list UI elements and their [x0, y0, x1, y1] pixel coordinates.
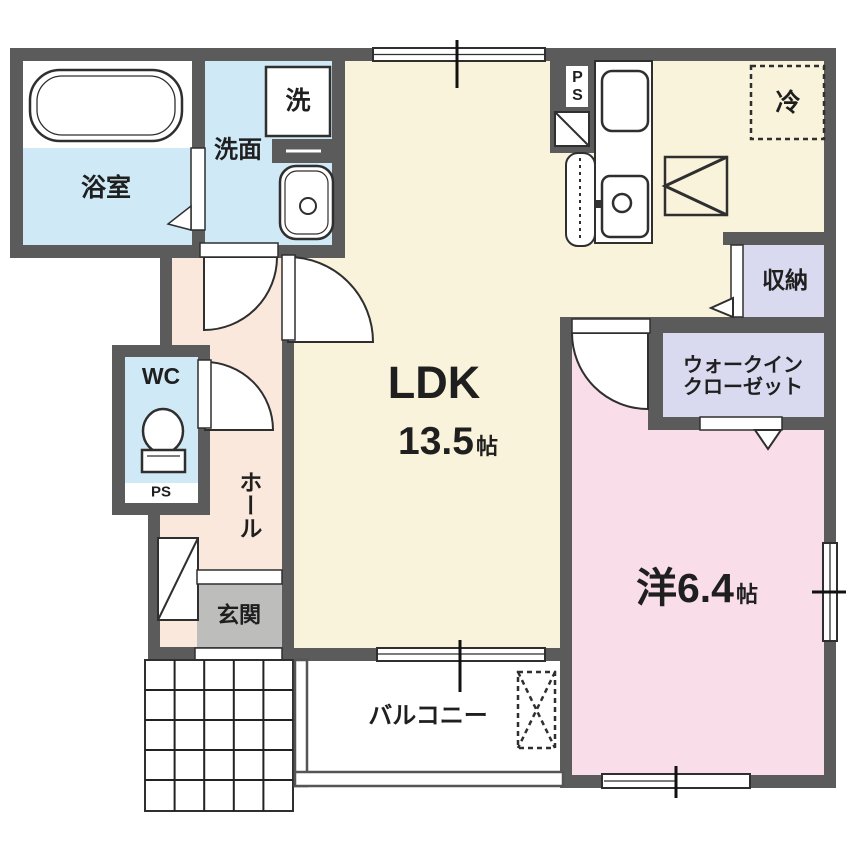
- wall-western-left: [560, 317, 572, 788]
- ldk-size-unit: 帖: [476, 435, 498, 460]
- wall-wic-left: [648, 317, 663, 430]
- washroom-label: 洗面: [214, 138, 262, 165]
- kitchen-stove: [602, 71, 648, 131]
- floor-plan: 浴室 洗 洗面 PS 冷 収納 ウォークイン クローゼット LDK 13.5帖 …: [0, 0, 846, 846]
- wc-ps-label: PS: [151, 485, 171, 502]
- ldk-size: 13.5帖: [398, 420, 498, 464]
- refrigerator-label: 冷: [775, 89, 800, 117]
- entrance-step: [197, 570, 282, 584]
- shoe-cabinet: [158, 538, 198, 620]
- porch-tiles: [145, 660, 293, 811]
- kitchen-counter-return: [566, 153, 595, 246]
- western-room-label: 洋6.4帖: [636, 566, 758, 612]
- hall-label: ホール: [235, 471, 261, 540]
- balcony-label: バルコニー: [368, 704, 488, 731]
- ldk-size-value: 13.5: [398, 420, 474, 464]
- wall-left-upper: [10, 48, 23, 258]
- kitchen-diagonal-square: [555, 112, 589, 146]
- washing-machine-label: 洗: [285, 87, 310, 115]
- ldk-label: LDK: [388, 358, 480, 408]
- entrance-label: 玄関: [217, 604, 261, 629]
- bath-label: 浴室: [81, 174, 131, 202]
- walk-in-closet-label: ウォークイン クローゼット: [683, 355, 803, 400]
- kitchen-ps-label: PS: [568, 69, 586, 105]
- balcony-equipment-box: [518, 672, 555, 748]
- wc-label: WC: [142, 364, 180, 390]
- bathtub: [30, 70, 182, 141]
- wall-storage-top: [723, 232, 836, 245]
- washroom-wall-stub: [272, 139, 333, 163]
- wall-washroom-ldk: [332, 48, 345, 258]
- walk-in-closet-label-line1: ウォークイン: [683, 355, 803, 377]
- wall-hall-left-upper: [160, 245, 172, 350]
- storage-label: 収納: [762, 268, 808, 294]
- walk-in-closet-label-line2: クローゼット: [683, 377, 803, 399]
- kitchen-sink: [594, 176, 648, 237]
- western-room-name: 洋6.4: [636, 566, 734, 612]
- western-room-unit: 帖: [736, 583, 758, 608]
- washroom-sink: [280, 166, 333, 239]
- toilet: [142, 409, 185, 472]
